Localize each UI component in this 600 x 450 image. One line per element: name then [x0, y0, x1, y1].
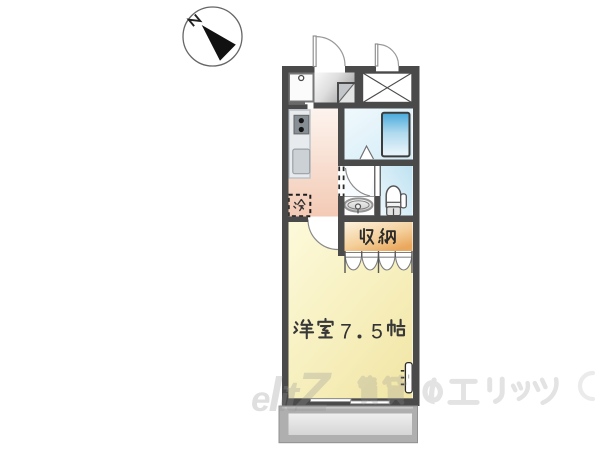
svg-text:7: 7	[340, 321, 352, 344]
svg-text:5: 5	[371, 321, 383, 344]
